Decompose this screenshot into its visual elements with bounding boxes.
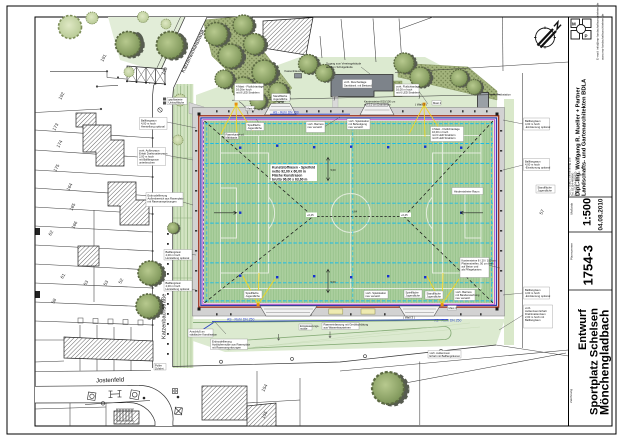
svg-text:Mähkante: Mähkante [226, 135, 238, 139]
svg-text:www.mp-landschaftsarchitekten.: www.mp-landschaftsarchitekten.de [601, 13, 605, 60]
svg-text:Jugendliche: Jugendliche [538, 189, 553, 193]
svg-text:Plannummer: Plannummer [570, 243, 574, 260]
svg-text:auf 5,0 cm Drainbeton: auf 5,0 cm Drainbeton [364, 103, 391, 107]
svg-text:5,00: 5,00 [331, 280, 337, 284]
svg-text:+0,45: +0,45 [307, 213, 314, 217]
svg-text:städtische Kanalisation: städtische Kanalisation [190, 333, 218, 337]
svg-text:mit 6 LED Strahlern: mit 6 LED Strahlern [396, 91, 420, 95]
svg-text:Mönchengladbach: Mönchengladbach [598, 310, 612, 415]
svg-text:1754-3: 1754-3 [581, 245, 596, 285]
svg-text:mulde: mulde [300, 327, 308, 331]
svg-text:Mast 2: Mast 2 [433, 101, 442, 105]
svg-text:mit Rasenanspritzungen: mit Rasenanspritzungen [212, 346, 241, 350]
svg-text:5,00: 5,00 [331, 168, 337, 172]
svg-text:Jugendliche: Jugendliche [273, 97, 288, 101]
svg-text:Jugendliche: Jugendliche [246, 294, 261, 298]
svg-text:Hindernisfreier Raum: Hindernisfreier Raum [454, 189, 480, 193]
svg-text:als Pflegekanten: als Pflegekanten [462, 268, 482, 272]
svg-text:Katzenbachstraße: Katzenbachstraße [162, 294, 168, 339]
svg-text:mit 8 LED Strahlern: mit 8 LED Strahlern [432, 136, 456, 140]
svg-text:Jugendliche: Jugendliche [406, 294, 421, 298]
svg-text:M: M [572, 22, 576, 27]
svg-text:P: P [585, 34, 588, 39]
svg-text:Herstellung optional: Herstellung optional [141, 125, 165, 129]
svg-text:( Wall 3 ): ( Wall 3 ) [403, 316, 415, 320]
svg-text:Jugendliche: Jugendliche [248, 126, 263, 130]
svg-text:neu versetzt: neu versetzt [308, 125, 323, 129]
svg-text:-Einzäunung optional: -Einzäunung optional [525, 166, 551, 170]
svg-text:-Einzäunung optional: -Einzäunung optional [525, 125, 551, 129]
svg-text:Sanitäranl. mit Bestand: Sanitäranl. mit Bestand [344, 83, 372, 87]
svg-text:Herstellung optional: Herstellung optional [166, 256, 190, 260]
svg-text:neu versetzt: neu versetzt [456, 296, 471, 300]
svg-text:Mast 3: Mast 3 [449, 306, 458, 310]
svg-text:neu versetzt: neu versetzt [366, 294, 381, 298]
svg-text:Erhalt mit Ballfangzäunen: Erhalt mit Ballfangzäunen [430, 354, 461, 358]
svg-text:E-mail: info@mp-landschaftsarc: E-mail: info@mp-landschaftsarchitekten.d… [596, 2, 600, 60]
svg-text:unterbrochen: unterbrochen [139, 161, 155, 165]
svg-text:AS - Rohr DN 150: AS - Rohr DN 150 [273, 110, 299, 114]
svg-text:Kassenhäuschen: Kassenhäuschen [285, 69, 306, 73]
svg-text:+0,45: +0,45 [401, 213, 408, 217]
svg-text:AS - Rohr DN 250: AS - Rohr DN 250 [227, 317, 254, 321]
svg-text:1:500: 1:500 [582, 198, 594, 226]
svg-text:-Einzäunung optional: -Einzäunung optional [525, 294, 551, 298]
svg-text:Entwurf: Entwurf [577, 309, 589, 350]
svg-text:mit 8 LED Strahlern: mit 8 LED Strahlern [236, 91, 260, 95]
svg-text:mit Rasenanspritzungen: mit Rasenanspritzungen [148, 200, 177, 204]
svg-text:Jostenfeld: Jostenfeld [96, 376, 125, 384]
svg-text:Fax. 02154-480870: Fax. 02154-480870 [574, 171, 578, 196]
svg-text:Umlauffläche: Umlauffläche [169, 101, 185, 105]
svg-text:Herstellung optional: Herstellung optional [166, 287, 190, 291]
svg-text:brutto 96,00 x 63,60 m: brutto 96,00 x 63,60 m [272, 178, 307, 182]
svg-text:Ballfangzaun: Ballfangzaun [525, 318, 541, 322]
svg-text:aus Wasserbausteinen: aus Wasserbausteinen [324, 326, 352, 330]
svg-text:Zeichnung: Zeichnung [569, 389, 573, 403]
svg-text:Maßstab: Maßstab [570, 202, 574, 214]
svg-text:Landschafts- und Gartenarchite: Landschafts- und Gartenarchitekten BDLA [582, 78, 588, 196]
svg-text:vorh. Trafostation: vorh. Trafostation [490, 93, 511, 97]
svg-text:Mast 4: Mast 4 [247, 106, 256, 110]
svg-text:Zufahrt: Zufahrt [155, 366, 164, 370]
svg-text:auf dem Schulgelände: auf dem Schulgelände [326, 65, 353, 69]
svg-text:04.08.2010: 04.08.2010 [598, 198, 605, 230]
svg-text:neu versetzt: neu versetzt [349, 125, 364, 129]
svg-text:( Wall 2 ): ( Wall 2 ) [415, 103, 427, 107]
svg-text:Jugendliche: Jugendliche [427, 295, 442, 299]
